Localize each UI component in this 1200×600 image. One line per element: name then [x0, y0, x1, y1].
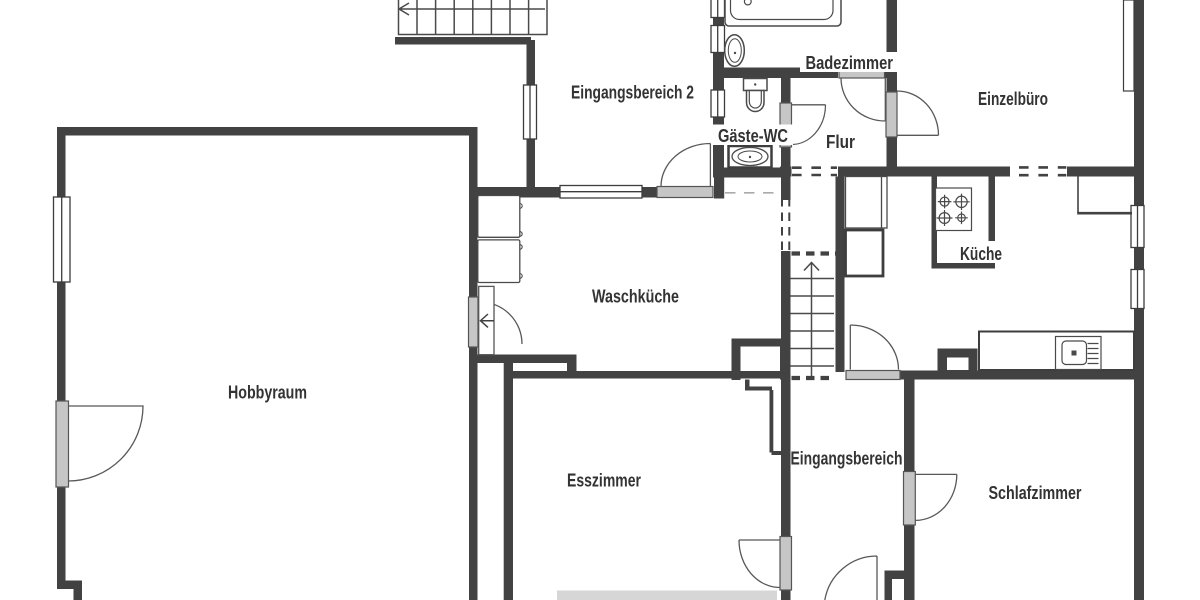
svg-text:Küche: Küche [960, 243, 1002, 264]
svg-text:Hobbyraum: Hobbyraum [228, 382, 307, 403]
svg-text:Esszimmer: Esszimmer [567, 470, 641, 491]
svg-text:Einzelbüro: Einzelbüro [978, 88, 1048, 109]
svg-text:Gäste-WC: Gäste-WC [718, 125, 788, 146]
svg-text:Eingangsbereich: Eingangsbereich [791, 448, 903, 469]
svg-text:Eingangsbereich 2: Eingangsbereich 2 [571, 82, 694, 103]
svg-text:Waschküche: Waschküche [592, 286, 679, 307]
svg-text:Badezimmer: Badezimmer [806, 52, 894, 73]
svg-text:Schlafzimmer: Schlafzimmer [989, 482, 1082, 503]
svg-text:Flur: Flur [826, 131, 855, 152]
